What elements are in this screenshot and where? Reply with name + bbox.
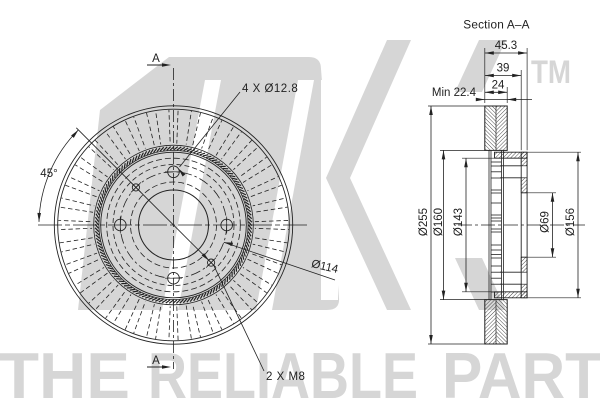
svg-text:Ø143: Ø143: [453, 208, 465, 236]
svg-text:45.3: 45.3: [495, 40, 517, 52]
svg-text:Min 22.4: Min 22.4: [432, 87, 477, 99]
svg-text:RELIABLE: RELIABLE: [148, 339, 418, 400]
svg-text:THE: THE: [0, 339, 130, 400]
svg-text:Ø160: Ø160: [433, 208, 445, 236]
svg-text:A: A: [152, 355, 160, 367]
svg-text:24: 24: [492, 80, 505, 92]
svg-text:A: A: [152, 53, 160, 65]
svg-text:Ø255: Ø255: [418, 208, 430, 236]
svg-text:PART: PART: [442, 339, 600, 400]
svg-text:TM: TM: [531, 54, 571, 90]
svg-text:Ø156: Ø156: [565, 208, 577, 236]
svg-text:Section A–A: Section A–A: [463, 18, 529, 32]
svg-text:2 X M8: 2 X M8: [266, 371, 305, 383]
svg-text:45°: 45°: [40, 168, 57, 180]
svg-text:Ø69: Ø69: [540, 211, 552, 233]
svg-text:4 X Ø12.8: 4 X Ø12.8: [242, 83, 298, 95]
svg-text:39: 39: [497, 63, 510, 75]
